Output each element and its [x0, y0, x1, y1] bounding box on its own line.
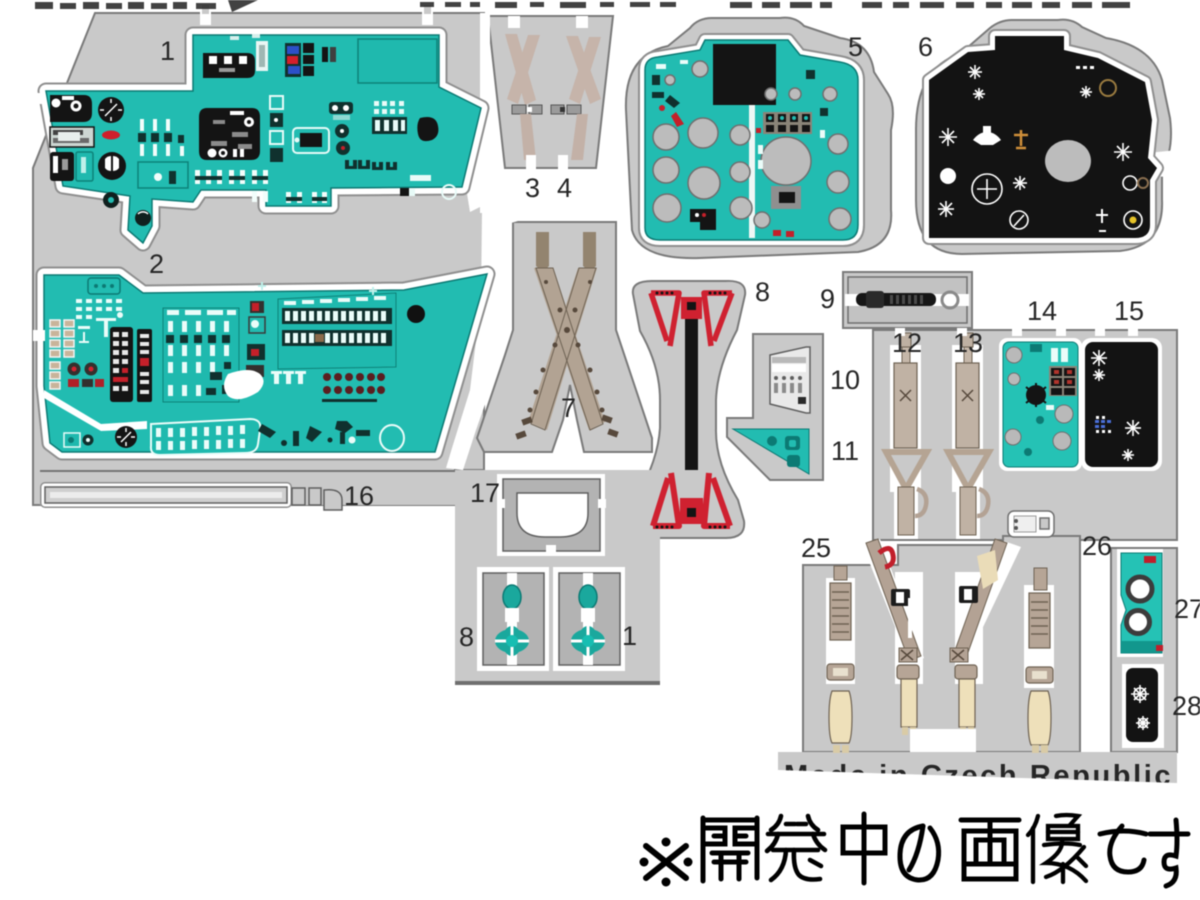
svg-text:12: 12	[892, 328, 922, 358]
svg-text:3: 3	[525, 173, 540, 203]
svg-text:9: 9	[820, 284, 835, 314]
svg-text:13: 13	[953, 328, 983, 358]
svg-text:26: 26	[1082, 531, 1112, 561]
svg-text:4: 4	[557, 173, 572, 203]
svg-text:15: 15	[1114, 296, 1144, 326]
svg-text:27: 27	[1174, 594, 1200, 624]
svg-text:10: 10	[830, 365, 860, 395]
svg-text:2: 2	[149, 249, 164, 279]
svg-text:16: 16	[344, 481, 374, 511]
svg-text:7: 7	[561, 393, 576, 423]
svg-text:28: 28	[1172, 691, 1200, 721]
svg-text:14: 14	[1027, 296, 1057, 326]
svg-text:5: 5	[848, 32, 863, 62]
svg-text:25: 25	[801, 533, 831, 563]
svg-text:17: 17	[470, 478, 500, 508]
svg-text:6: 6	[918, 32, 933, 62]
svg-text:1: 1	[160, 36, 175, 66]
svg-text:8: 8	[459, 622, 474, 652]
svg-text:1: 1	[622, 621, 637, 651]
svg-text:11: 11	[831, 436, 859, 466]
svg-text:8: 8	[755, 277, 770, 307]
